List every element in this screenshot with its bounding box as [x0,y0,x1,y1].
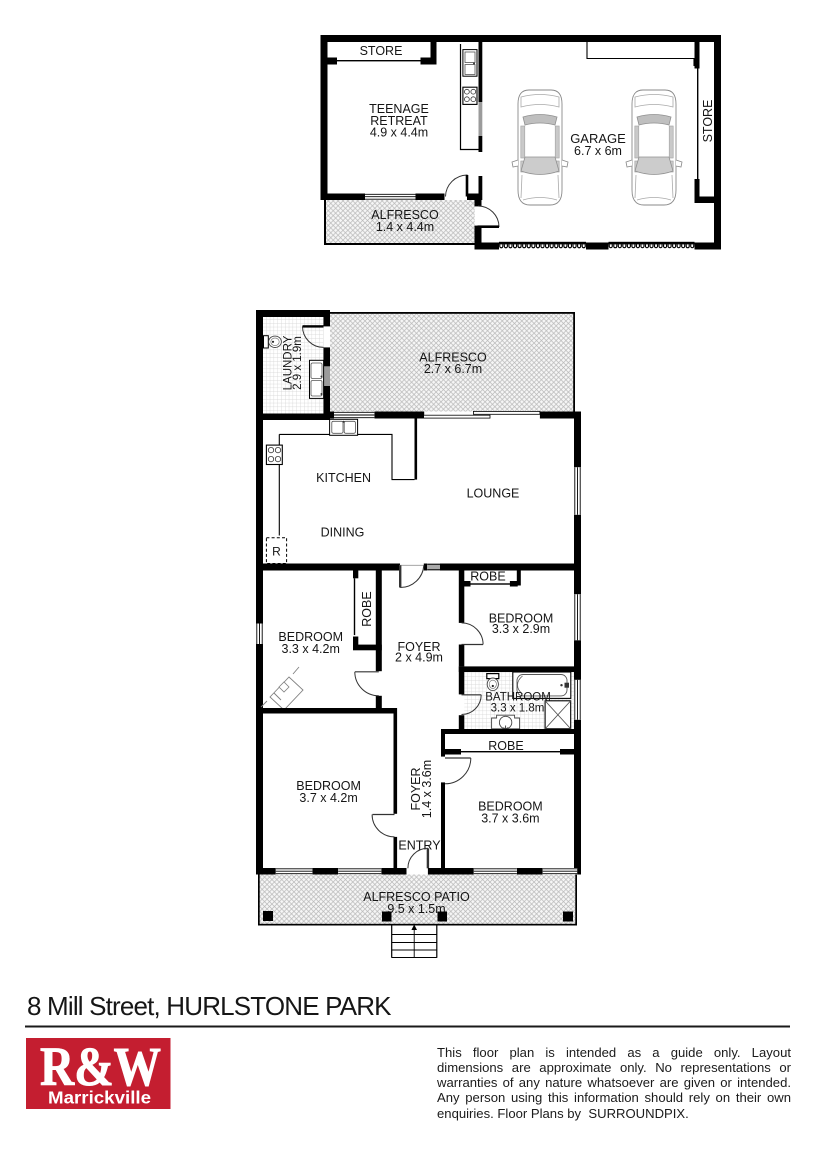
svg-text:ROBE: ROBE [488,739,523,753]
svg-text:LOUNGE: LOUNGE [467,487,520,501]
svg-text:4.9 x 4.4m: 4.9 x 4.4m [370,126,428,140]
svg-text:1.4 x 3.6m: 1.4 x 3.6m [420,760,434,818]
svg-text:9.5 x 1.5m: 9.5 x 1.5m [387,902,445,916]
svg-text:2.7 x 6.7m: 2.7 x 6.7m [424,362,482,376]
svg-text:3.3 x 2.9m: 3.3 x 2.9m [492,622,550,636]
svg-text:1.4 x 4.4m: 1.4 x 4.4m [376,220,434,234]
svg-text:DINING: DINING [321,526,365,540]
svg-text:8 Mill Street, HURLSTONE PARK: 8 Mill Street, HURLSTONE PARK [27,991,392,1021]
svg-text:3.3 x 1.8m: 3.3 x 1.8m [491,703,545,715]
svg-text:ROBE: ROBE [360,591,374,626]
svg-text:3.7 x 3.6m: 3.7 x 3.6m [481,812,539,826]
svg-text:2.9 x 1.9m: 2.9 x 1.9m [292,336,304,390]
svg-text:STORE: STORE [360,44,403,58]
svg-text:STORE: STORE [701,100,715,143]
svg-text:3.7 x 4.2m: 3.7 x 4.2m [299,791,357,805]
svg-text:R: R [272,545,281,559]
svg-text:Marrickville: Marrickville [48,1088,151,1108]
svg-text:ROBE: ROBE [470,570,505,584]
svg-text:2 x 4.9m: 2 x 4.9m [395,651,443,665]
svg-text:3.3 x 4.2m: 3.3 x 4.2m [282,642,340,656]
svg-text:KITCHEN: KITCHEN [316,471,371,485]
svg-text:6.7 x 6m: 6.7 x 6m [574,144,622,158]
